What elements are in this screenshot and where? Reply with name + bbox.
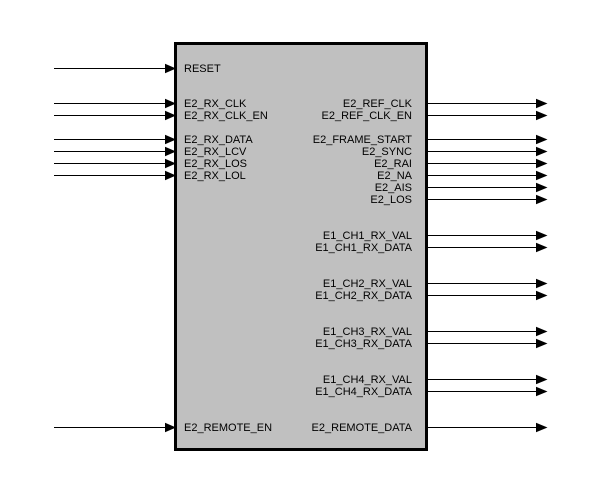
svg-text:E2_FRAME_START: E2_FRAME_START [313,134,413,146]
svg-text:E1_CH3_RX_VAL: E1_CH3_RX_VAL [323,326,412,338]
svg-text:E2_AIS: E2_AIS [375,182,412,194]
svg-text:E2_REF_CLK: E2_REF_CLK [343,98,413,110]
svg-text:E1_CH4_RX_VAL: E1_CH4_RX_VAL [323,374,412,386]
svg-text:RESET: RESET [184,63,221,75]
svg-text:E2_REF_CLK_EN: E2_REF_CLK_EN [322,110,413,122]
svg-text:E2_REMOTE_DATA: E2_REMOTE_DATA [312,422,413,434]
svg-text:E1_CH1_RX_DATA: E1_CH1_RX_DATA [315,242,412,254]
svg-text:E2_RX_LCV: E2_RX_LCV [184,146,247,158]
svg-text:E1_CH1_RX_VAL: E1_CH1_RX_VAL [323,230,412,242]
svg-text:E2_SYNC: E2_SYNC [362,146,412,158]
svg-text:E2_RX_CLK_EN: E2_RX_CLK_EN [184,110,268,122]
svg-text:E2_LOS: E2_LOS [370,194,412,206]
svg-text:E1_CH4_RX_DATA: E1_CH4_RX_DATA [315,386,412,398]
svg-text:E1_CH3_RX_DATA: E1_CH3_RX_DATA [315,338,412,350]
svg-text:E2_RX_CLK: E2_RX_CLK [184,98,247,110]
svg-text:E2_RX_LOS: E2_RX_LOS [184,158,247,170]
svg-text:E2_RAI: E2_RAI [374,158,412,170]
svg-text:E2_RX_LOL: E2_RX_LOL [184,170,246,182]
svg-text:E2_RX_DATA: E2_RX_DATA [184,134,253,146]
svg-text:E2_NA: E2_NA [377,170,413,182]
svg-text:E1_CH2_RX_VAL: E1_CH2_RX_VAL [323,278,412,290]
svg-text:E1_CH2_RX_DATA: E1_CH2_RX_DATA [315,290,412,302]
svg-text:E2_REMOTE_EN: E2_REMOTE_EN [184,422,272,434]
